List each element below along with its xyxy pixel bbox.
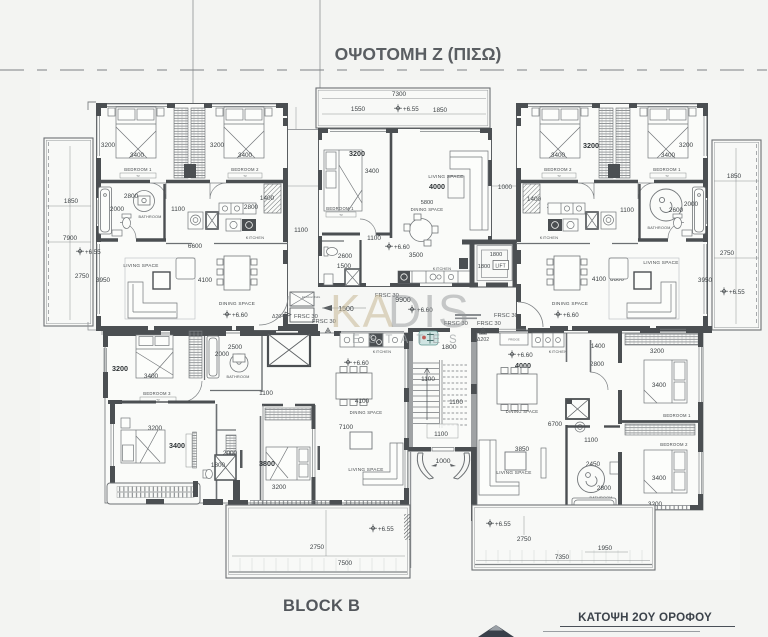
svg-text:1100: 1100 xyxy=(434,431,448,438)
svg-text:6700: 6700 xyxy=(548,421,563,428)
svg-text:1850: 1850 xyxy=(727,173,742,180)
svg-text:2000: 2000 xyxy=(215,351,230,358)
svg-text:+6.60: +6.60 xyxy=(353,360,369,367)
svg-text:+6.55: +6.55 xyxy=(403,106,419,113)
svg-text:2500: 2500 xyxy=(228,344,243,351)
svg-text:5800: 5800 xyxy=(421,200,433,206)
svg-text:TV: TV xyxy=(136,174,140,178)
svg-text:DINING SPACE: DINING SPACE xyxy=(552,301,588,306)
svg-text:4100: 4100 xyxy=(592,276,607,283)
svg-text:3200: 3200 xyxy=(112,364,128,373)
svg-text:TV: TV xyxy=(339,213,343,217)
svg-text:1400: 1400 xyxy=(260,195,275,202)
svg-text:LIVING SPACE: LIVING SPACE xyxy=(428,174,463,179)
svg-text:BLOCK B: BLOCK B xyxy=(283,597,360,615)
svg-text:3400: 3400 xyxy=(130,152,145,159)
svg-text:LIVING SPACE: LIVING SPACE xyxy=(643,260,678,265)
svg-text:+6.60: +6.60 xyxy=(563,312,579,319)
svg-text:3400: 3400 xyxy=(652,475,667,482)
svg-text:3400: 3400 xyxy=(551,152,566,159)
svg-text:3800: 3800 xyxy=(259,459,275,468)
svg-text:FRSC 30: FRSC 30 xyxy=(477,321,501,327)
svg-text:4000: 4000 xyxy=(429,182,445,191)
svg-text:1000: 1000 xyxy=(498,184,513,191)
svg-text:KITCHEN: KITCHEN xyxy=(549,350,567,354)
svg-text:LIFT: LIFT xyxy=(495,264,505,270)
svg-text:1400: 1400 xyxy=(591,343,606,350)
svg-text:3200: 3200 xyxy=(650,348,665,355)
svg-text:1100: 1100 xyxy=(620,207,634,214)
svg-text:1800: 1800 xyxy=(490,252,502,258)
svg-text:3200: 3200 xyxy=(679,142,694,149)
svg-text:1800: 1800 xyxy=(211,462,226,469)
svg-text:2800: 2800 xyxy=(590,361,605,368)
svg-text:BEDROOM 2: BEDROOM 2 xyxy=(544,167,572,172)
svg-text:+6.60: +6.60 xyxy=(517,352,533,359)
svg-text:BATHROOM: BATHROOM xyxy=(647,226,670,230)
svg-text:1850: 1850 xyxy=(64,198,79,205)
svg-text:2800: 2800 xyxy=(244,204,259,211)
svg-text:1100: 1100 xyxy=(259,390,273,397)
svg-text:+6.60: +6.60 xyxy=(394,244,410,251)
svg-text:TV: TV xyxy=(243,174,247,178)
svg-text:Δ204: Δ204 xyxy=(272,314,284,320)
svg-text:+6.55: +6.55 xyxy=(85,249,101,256)
svg-text:2000: 2000 xyxy=(223,450,238,457)
svg-text:DINING SPACE: DINING SPACE xyxy=(350,410,383,415)
svg-text:3200: 3200 xyxy=(349,149,365,158)
svg-text:1100: 1100 xyxy=(584,437,598,444)
svg-text:2600: 2600 xyxy=(338,253,353,260)
svg-text:3200: 3200 xyxy=(583,141,599,150)
svg-text:+6.55: +6.55 xyxy=(495,521,511,528)
svg-text:2750: 2750 xyxy=(75,273,90,280)
svg-text:1950: 1950 xyxy=(598,545,613,552)
svg-text:3400: 3400 xyxy=(238,152,253,159)
svg-text:1100: 1100 xyxy=(367,235,381,242)
svg-text:2800: 2800 xyxy=(124,193,139,200)
svg-text:7100: 7100 xyxy=(339,424,354,431)
svg-text:2750: 2750 xyxy=(517,536,532,543)
svg-text:TV: TV xyxy=(557,174,561,178)
svg-text:3400: 3400 xyxy=(169,441,185,450)
svg-text:1850: 1850 xyxy=(433,107,448,114)
svg-text:1100: 1100 xyxy=(421,376,435,383)
svg-text:3200: 3200 xyxy=(210,142,225,149)
svg-text:+6.55: +6.55 xyxy=(378,526,394,533)
svg-text:4100: 4100 xyxy=(198,277,213,284)
svg-text:Δ202: Δ202 xyxy=(477,337,489,343)
svg-text:4100: 4100 xyxy=(355,398,370,405)
svg-text:BEDROOM 2: BEDROOM 2 xyxy=(231,167,259,172)
svg-text:ESTATES: ESTATES xyxy=(352,334,466,346)
svg-text:BEDROOM 2: BEDROOM 2 xyxy=(660,442,688,447)
svg-text:2750: 2750 xyxy=(720,250,735,257)
svg-text:7500: 7500 xyxy=(338,560,353,567)
svg-text:BEDROOM 1: BEDROOM 1 xyxy=(653,167,681,172)
svg-text:2000: 2000 xyxy=(110,206,125,213)
svg-text:2750: 2750 xyxy=(310,544,325,551)
svg-text:KITCHEN: KITCHEN xyxy=(433,267,451,271)
svg-text:KITCHEN: KITCHEN xyxy=(373,350,391,354)
svg-text:3400: 3400 xyxy=(661,152,676,159)
svg-text:LIVING SPACE: LIVING SPACE xyxy=(123,263,158,268)
svg-text:7350: 7350 xyxy=(555,554,570,561)
svg-text:BEDROOM 3: BEDROOM 3 xyxy=(143,391,171,396)
svg-text:KITCHEN: KITCHEN xyxy=(246,236,264,240)
svg-text:7300: 7300 xyxy=(392,91,407,98)
svg-text:1550: 1550 xyxy=(351,106,366,113)
svg-text:1100: 1100 xyxy=(171,206,185,213)
svg-text:+6.60: +6.60 xyxy=(232,312,248,319)
svg-text:DINING SPACE: DINING SPACE xyxy=(411,207,444,212)
svg-text:3400: 3400 xyxy=(144,373,159,380)
svg-text:DINING SPACE: DINING SPACE xyxy=(506,409,539,414)
svg-text:3200: 3200 xyxy=(272,484,287,491)
svg-text:FRSC 30: FRSC 30 xyxy=(494,313,518,319)
svg-text:1800: 1800 xyxy=(478,264,490,270)
svg-text:BATHROOM: BATHROOM xyxy=(226,375,249,379)
svg-text:Electrical shafts: Electrical shafts xyxy=(302,295,321,299)
svg-text:KITCHEN: KITCHEN xyxy=(540,236,558,240)
svg-text:LIVING SPACE: LIVING SPACE xyxy=(496,470,531,475)
svg-text:BEDROOM 1: BEDROOM 1 xyxy=(124,167,152,172)
svg-text:BEDROOM 1: BEDROOM 1 xyxy=(326,206,354,211)
svg-text:3500: 3500 xyxy=(409,252,424,259)
svg-text:KA: KA xyxy=(330,285,395,337)
svg-text:BATHROOM: BATHROOM xyxy=(138,215,161,219)
svg-text:1100: 1100 xyxy=(449,399,463,406)
svg-text:DIS: DIS xyxy=(388,285,471,337)
svg-text:3400: 3400 xyxy=(365,168,380,175)
svg-text:3400: 3400 xyxy=(652,382,667,389)
svg-text:2000: 2000 xyxy=(684,201,699,208)
svg-text:BEDROOM 1: BEDROOM 1 xyxy=(663,413,691,418)
svg-text:FRIDGE: FRIDGE xyxy=(508,338,519,342)
svg-text:3200: 3200 xyxy=(101,142,116,149)
svg-text:2450: 2450 xyxy=(586,461,601,468)
svg-text:+6.55: +6.55 xyxy=(729,289,745,296)
svg-text:ΟΨΟΤΟΜΗ Z (ΠΙΣΩ): ΟΨΟΤΟΜΗ Z (ΠΙΣΩ) xyxy=(335,44,502,64)
svg-text:DINING SPACE: DINING SPACE xyxy=(219,301,255,306)
svg-text:1100: 1100 xyxy=(294,227,308,234)
svg-text:1000: 1000 xyxy=(435,458,450,465)
svg-text:3950: 3950 xyxy=(698,277,713,284)
svg-text:2800: 2800 xyxy=(597,485,612,492)
svg-text:2600: 2600 xyxy=(669,207,684,214)
svg-text:3950: 3950 xyxy=(96,277,111,284)
svg-text:TV: TV xyxy=(665,174,669,178)
svg-text:LIVING SPACE: LIVING SPACE xyxy=(348,467,383,472)
svg-text:ΚΑΤΟΨΗ 2ΟΥ ΟΡΟΦΟΥ: ΚΑΤΟΨΗ 2ΟΥ ΟΡΟΦΟΥ xyxy=(578,611,712,624)
svg-text:7900: 7900 xyxy=(63,235,78,242)
